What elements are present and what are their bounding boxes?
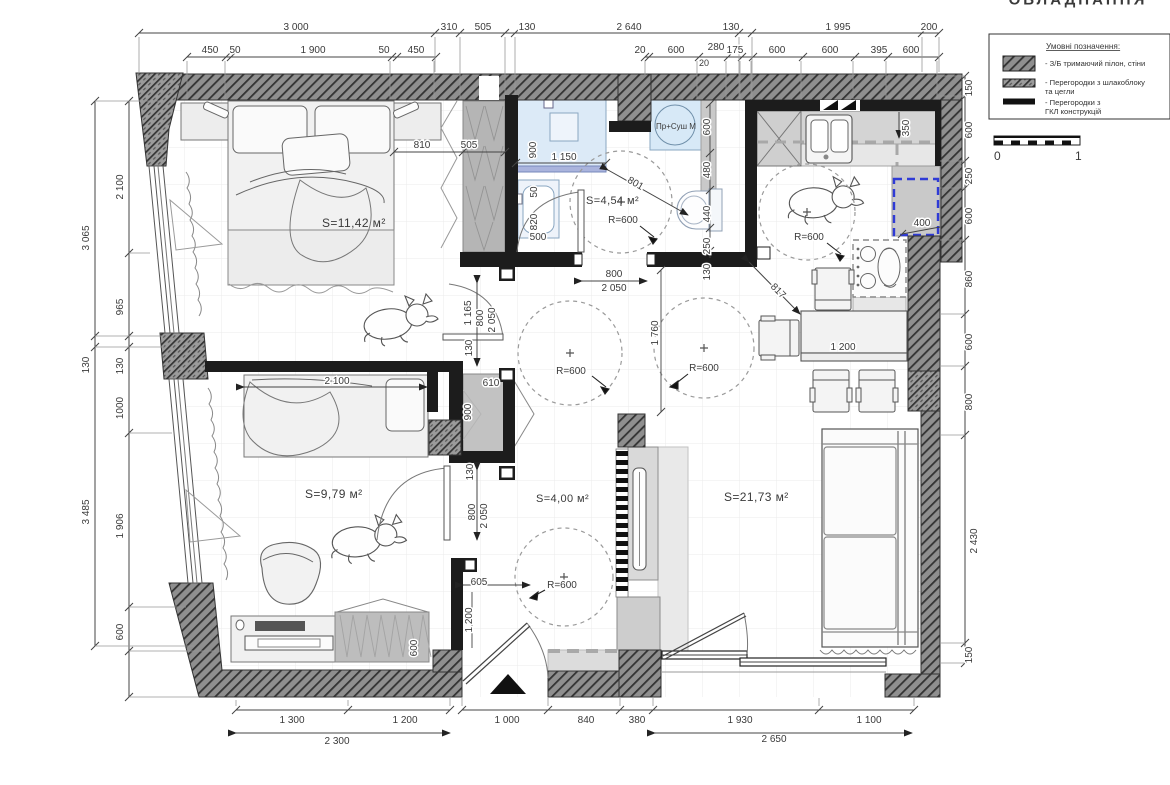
svg-text:600: 600 <box>964 333 975 350</box>
svg-text:440: 440 <box>702 205 713 222</box>
svg-text:R=600: R=600 <box>608 215 638 226</box>
svg-text:1 200: 1 200 <box>464 607 475 632</box>
svg-text:350: 350 <box>901 119 912 136</box>
svg-text:800: 800 <box>467 503 478 520</box>
svg-text:600: 600 <box>903 45 920 56</box>
svg-text:S=4,00 м²: S=4,00 м² <box>536 493 589 505</box>
svg-text:50: 50 <box>378 45 390 56</box>
svg-text:1 300: 1 300 <box>279 715 304 726</box>
svg-text:2 050: 2 050 <box>479 503 490 528</box>
svg-text:- З/Б тримаючий пілон, стіни: - З/Б тримаючий пілон, стіни <box>1045 59 1145 68</box>
svg-text:800: 800 <box>964 393 975 410</box>
svg-text:S=11,42 м²: S=11,42 м² <box>322 216 386 230</box>
svg-text:965: 965 <box>115 298 126 315</box>
svg-text:130: 130 <box>723 22 740 33</box>
svg-text:130: 130 <box>702 263 713 280</box>
svg-text:ГКЛ конструкцій: ГКЛ конструкцій <box>1045 107 1101 116</box>
svg-text:1 760: 1 760 <box>650 320 661 345</box>
svg-text:600: 600 <box>769 45 786 56</box>
svg-text:280: 280 <box>708 42 725 53</box>
svg-text:2 100: 2 100 <box>324 376 349 387</box>
svg-text:S=21,73 м²: S=21,73 м² <box>724 490 789 504</box>
svg-text:130: 130 <box>464 339 475 356</box>
svg-text:900: 900 <box>528 141 539 158</box>
svg-text:130: 130 <box>465 463 476 480</box>
svg-text:600: 600 <box>964 207 975 224</box>
svg-text:2 650: 2 650 <box>761 734 786 745</box>
svg-text:S=9,79 м²: S=9,79 м² <box>305 487 363 501</box>
svg-text:505: 505 <box>475 22 492 33</box>
svg-text:20: 20 <box>699 58 709 68</box>
svg-text:150: 150 <box>964 79 975 96</box>
svg-text:605: 605 <box>471 577 488 588</box>
svg-text:50: 50 <box>529 186 540 198</box>
svg-text:R=600: R=600 <box>794 232 824 243</box>
svg-text:1 995: 1 995 <box>825 22 850 33</box>
svg-text:130: 130 <box>115 357 126 374</box>
svg-text:- Перегородки з: - Перегородки з <box>1045 98 1101 107</box>
svg-text:600: 600 <box>702 118 713 135</box>
svg-text:175: 175 <box>727 45 744 56</box>
svg-text:2 100: 2 100 <box>115 174 126 199</box>
svg-text:1 200: 1 200 <box>830 342 855 353</box>
svg-text:860: 860 <box>964 270 975 287</box>
svg-text:2 430: 2 430 <box>969 528 980 553</box>
svg-text:800: 800 <box>606 269 623 280</box>
svg-text:2 300: 2 300 <box>324 736 349 747</box>
svg-text:0: 0 <box>994 149 1001 163</box>
svg-text:505: 505 <box>461 140 478 151</box>
svg-text:800: 800 <box>475 309 486 326</box>
svg-text:S=4,54 м²: S=4,54 м² <box>586 195 639 207</box>
svg-text:Умовні позначення:: Умовні позначення: <box>1046 42 1120 51</box>
svg-text:Пр+Суш М: Пр+Суш М <box>656 122 696 131</box>
svg-text:R=600: R=600 <box>689 363 719 374</box>
svg-text:1 200: 1 200 <box>392 715 417 726</box>
svg-text:R=600: R=600 <box>556 366 586 377</box>
svg-text:150: 150 <box>964 646 975 663</box>
svg-text:1 165: 1 165 <box>463 300 474 325</box>
svg-text:130: 130 <box>81 356 92 373</box>
svg-text:1 930: 1 930 <box>727 715 752 726</box>
svg-text:200: 200 <box>921 22 938 33</box>
svg-text:250: 250 <box>702 237 713 254</box>
svg-text:820: 820 <box>529 213 540 230</box>
svg-text:480: 480 <box>702 161 713 178</box>
svg-text:250: 250 <box>964 167 975 184</box>
svg-text:20: 20 <box>634 45 646 56</box>
svg-text:3 065: 3 065 <box>81 225 92 250</box>
svg-text:900: 900 <box>463 403 474 420</box>
svg-text:600: 600 <box>115 623 126 640</box>
svg-text:1 000: 1 000 <box>494 715 519 726</box>
svg-text:610: 610 <box>483 378 500 389</box>
svg-text:3 485: 3 485 <box>81 499 92 524</box>
svg-text:600: 600 <box>409 639 420 656</box>
svg-text:600: 600 <box>964 121 975 138</box>
svg-text:1000: 1000 <box>115 396 126 419</box>
svg-text:2 050: 2 050 <box>601 283 626 294</box>
svg-text:600: 600 <box>822 45 839 56</box>
svg-text:2 050: 2 050 <box>487 307 498 332</box>
svg-text:380: 380 <box>629 715 646 726</box>
svg-text:310: 310 <box>441 22 458 33</box>
svg-text:810: 810 <box>414 140 431 151</box>
svg-text:1 100: 1 100 <box>856 715 881 726</box>
svg-text:450: 450 <box>408 45 425 56</box>
svg-text:840: 840 <box>578 715 595 726</box>
svg-text:395: 395 <box>871 45 888 56</box>
svg-text:130: 130 <box>519 22 536 33</box>
svg-text:400: 400 <box>914 218 931 229</box>
svg-text:1 900: 1 900 <box>300 45 325 56</box>
svg-text:50: 50 <box>229 45 241 56</box>
svg-text:1 906: 1 906 <box>115 513 126 538</box>
svg-text:500: 500 <box>530 232 547 243</box>
svg-text:ОБЛАДНАННЯ: ОБЛАДНАННЯ <box>1009 0 1148 9</box>
svg-text:450: 450 <box>202 45 219 56</box>
svg-text:600: 600 <box>668 45 685 56</box>
svg-text:1 150: 1 150 <box>551 152 576 163</box>
svg-text:2 640: 2 640 <box>616 22 641 33</box>
svg-text:- Перегородки з шлакоблоку: - Перегородки з шлакоблоку <box>1045 78 1145 87</box>
svg-text:та цегли: та цегли <box>1045 87 1075 96</box>
svg-text:R=600: R=600 <box>547 580 577 591</box>
svg-text:1: 1 <box>1075 149 1082 163</box>
svg-text:3 000: 3 000 <box>283 22 308 33</box>
